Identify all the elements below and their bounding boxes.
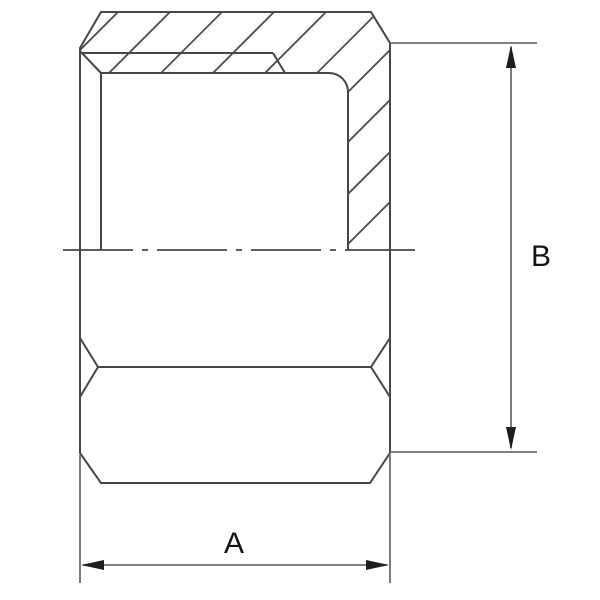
dimension-a: A — [80, 455, 390, 583]
drawing-page: A B — [0, 0, 600, 600]
outer-body-outline — [80, 12, 390, 483]
technical-drawing-canvas: A B — [0, 0, 600, 600]
bore-ceiling-and-right-wall — [101, 73, 348, 250]
hex-flat-left-notch — [80, 338, 98, 397]
dim-b-arrow-bottom — [506, 427, 516, 450]
section-hatching — [0, 0, 592, 260]
hex-flat-right-notch — [371, 338, 390, 397]
dim-b-label: B — [531, 240, 551, 273]
dim-a-arrow-right — [366, 560, 389, 570]
thread-entry-chamfer — [80, 51, 101, 73]
dim-b-arrow-top — [506, 45, 516, 68]
dim-a-label: A — [224, 527, 244, 560]
dim-a-arrow-left — [81, 560, 104, 570]
dimension-b: B — [390, 43, 551, 452]
